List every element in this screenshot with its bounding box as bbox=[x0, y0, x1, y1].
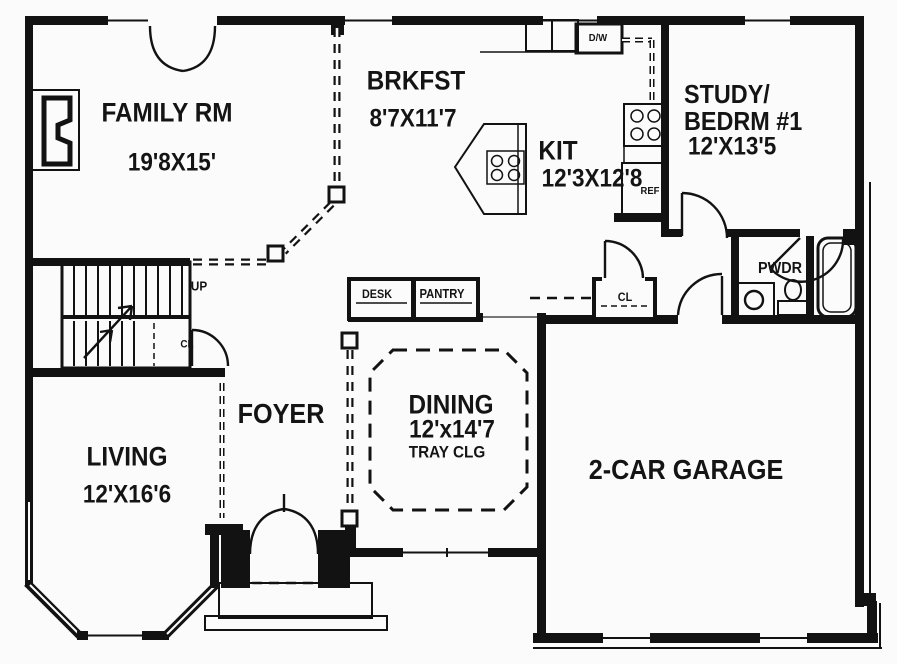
counter-edge bbox=[624, 146, 666, 163]
column-line bbox=[284, 204, 332, 252]
wall bbox=[25, 16, 33, 373]
burner bbox=[631, 110, 643, 122]
wall bbox=[727, 229, 800, 237]
wall bbox=[210, 533, 219, 588]
hall-closet-label: CL bbox=[618, 291, 632, 303]
breakfast-dims: 8'7X11'7 bbox=[369, 107, 456, 132]
desk-label: DESK bbox=[362, 288, 392, 300]
window bbox=[403, 552, 446, 554]
door-opening bbox=[602, 274, 645, 283]
kitchen-dims: 12'3X12'8 bbox=[542, 167, 643, 192]
door-opening bbox=[148, 16, 217, 25]
wall bbox=[614, 213, 666, 222]
tub-inner bbox=[823, 243, 851, 312]
study-door-arc bbox=[682, 193, 727, 238]
burner bbox=[648, 110, 660, 122]
sink bbox=[745, 291, 763, 309]
eave-line bbox=[879, 603, 881, 649]
burner bbox=[631, 128, 643, 140]
wall bbox=[867, 601, 877, 643]
garage-door bbox=[760, 637, 807, 639]
entry-door-right bbox=[284, 509, 318, 554]
wall bbox=[221, 530, 250, 588]
kitchen-label: KIT bbox=[538, 138, 577, 165]
column-post bbox=[342, 333, 357, 348]
foyer-label: FOYER bbox=[238, 400, 325, 428]
threshold bbox=[483, 316, 537, 318]
porch bbox=[219, 583, 372, 618]
burner bbox=[492, 156, 503, 167]
window bbox=[448, 552, 488, 554]
refrigerator-label: REF bbox=[641, 186, 660, 197]
vanity bbox=[736, 283, 774, 317]
burner bbox=[648, 128, 660, 140]
toilet-tank bbox=[778, 301, 809, 315]
column-post bbox=[268, 246, 283, 261]
living-room-dims: 12'X16'6 bbox=[83, 483, 171, 508]
study-label-line2: BEDRM #1 bbox=[684, 108, 802, 134]
study-dims: 12'X13'5 bbox=[688, 135, 776, 160]
window bbox=[108, 20, 148, 22]
family-room-dims: 19'8X15' bbox=[128, 151, 216, 176]
wall bbox=[533, 633, 878, 643]
column-post bbox=[342, 511, 357, 526]
dining-dims: 12'x14'7 bbox=[409, 418, 495, 443]
stairs-up-label: UP bbox=[191, 280, 207, 293]
powder-room-label: PWDR bbox=[758, 261, 802, 277]
living-room-label: LIVING bbox=[86, 444, 167, 471]
door-arc bbox=[605, 241, 643, 278]
dining-label: DINING bbox=[408, 392, 493, 419]
entry-door-left bbox=[250, 509, 284, 554]
cabinet-divider bbox=[411, 279, 416, 319]
door-arc bbox=[192, 330, 228, 366]
range-box bbox=[624, 104, 666, 146]
stair-treads bbox=[74, 321, 134, 366]
dining-ceiling-note: TRAY CLG bbox=[409, 444, 486, 461]
stair-landing-line bbox=[62, 315, 190, 319]
window bbox=[167, 586, 215, 634]
garage-label: 2-CAR GARAGE bbox=[589, 456, 784, 484]
firebox bbox=[44, 98, 70, 164]
garage-door-arc bbox=[678, 274, 722, 315]
window bbox=[745, 20, 790, 22]
garage-door bbox=[603, 637, 650, 639]
floor-plan: FAMILY RM 19'8X15' BRKFST 8'7X11'7 KIT 1… bbox=[0, 0, 897, 664]
window bbox=[28, 502, 30, 580]
column-post bbox=[329, 187, 344, 202]
wall bbox=[661, 229, 682, 237]
window bbox=[345, 20, 392, 22]
toilet-bowl bbox=[785, 280, 801, 300]
window bbox=[30, 585, 79, 634]
dishwasher-label: D/W bbox=[589, 33, 607, 44]
burner bbox=[492, 170, 503, 181]
wall bbox=[537, 313, 546, 643]
breakfast-label: BRKFST bbox=[367, 68, 466, 95]
french-door-right bbox=[183, 26, 215, 71]
stair-direction-arrow bbox=[84, 306, 132, 358]
window bbox=[88, 635, 142, 637]
study-label-line1: STUDY/ bbox=[684, 81, 770, 107]
family-room-label: FAMILY RM bbox=[102, 100, 233, 127]
pantry-label: PANTRY bbox=[420, 288, 465, 301]
eave-line bbox=[533, 647, 882, 649]
eave-line bbox=[869, 182, 871, 603]
stair-closet-label: CL bbox=[180, 340, 193, 351]
french-door-left bbox=[150, 26, 183, 71]
stair-treads bbox=[74, 266, 182, 316]
